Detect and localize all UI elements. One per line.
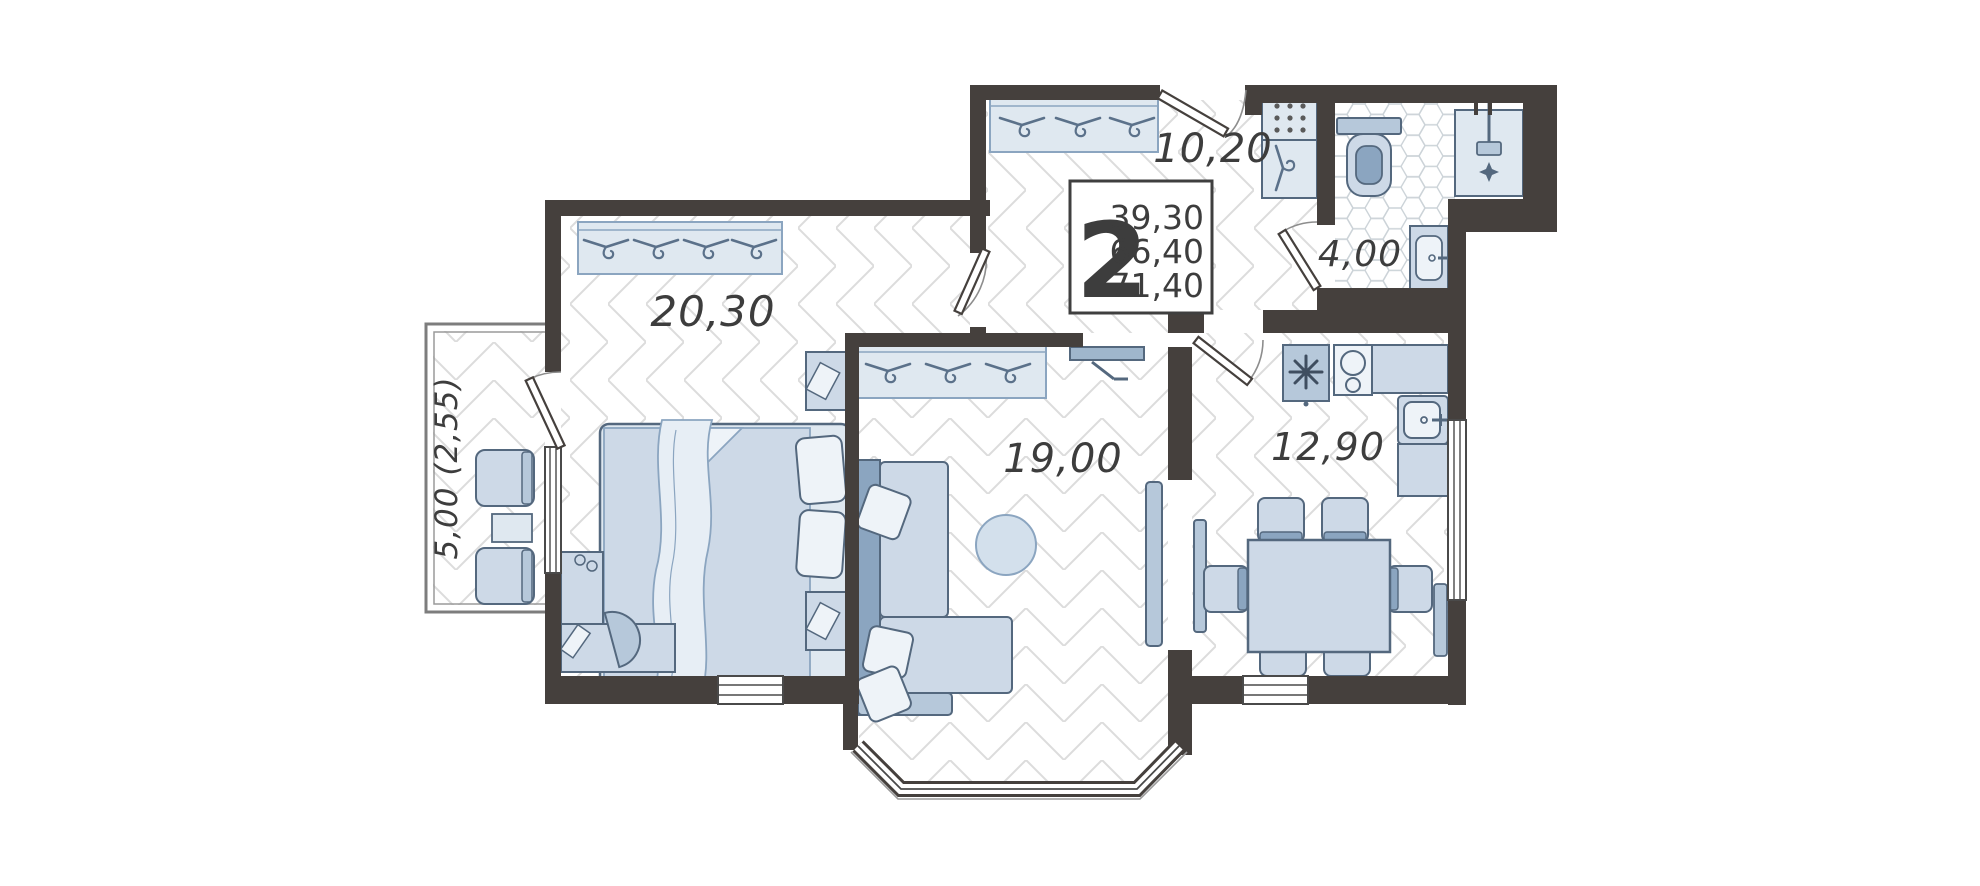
wall-segment bbox=[845, 333, 859, 700]
bathroom-area-label: 4,00 bbox=[1318, 234, 1402, 275]
dining-chair bbox=[1388, 566, 1432, 612]
nightstand-bottom bbox=[806, 592, 846, 650]
wall-segment bbox=[970, 85, 1160, 100]
sliding-door-leaf-living bbox=[1146, 482, 1162, 646]
hallway-area-label: 10,20 bbox=[1153, 126, 1273, 172]
living-room-area-label: 19,00 bbox=[1003, 436, 1123, 482]
bed-pillow bbox=[795, 435, 847, 505]
floor-plan-drawing: 10,20 20,30 19,00 12,90 4,00 5,00 (2,55)… bbox=[0, 0, 1980, 886]
balcony-side-table bbox=[492, 514, 532, 542]
bed-pillow bbox=[796, 510, 846, 579]
wall-segment bbox=[1247, 85, 1557, 103]
wall-segment bbox=[1263, 310, 1466, 333]
info-total-area: 71,40 bbox=[1110, 266, 1204, 305]
info-box: 2 39,30 66,40 71,40 bbox=[1070, 181, 1212, 322]
balcony-chair-bottom bbox=[476, 548, 534, 604]
wall-segment bbox=[970, 216, 986, 253]
wall-segment bbox=[545, 200, 561, 372]
balcony-chair-top bbox=[476, 450, 534, 506]
wall-segment bbox=[545, 200, 990, 216]
kitchen-sink bbox=[1398, 396, 1450, 444]
wall-segment bbox=[970, 85, 986, 216]
kitchen-area-label: 12,90 bbox=[1271, 425, 1385, 469]
wall-segment bbox=[783, 676, 859, 704]
wall-segment bbox=[1168, 676, 1243, 704]
wall-tick bbox=[1488, 103, 1492, 115]
radiator bbox=[1434, 584, 1447, 656]
burner-icon bbox=[1290, 356, 1322, 388]
toilet bbox=[1337, 118, 1401, 196]
bedroom-area-label: 20,30 bbox=[650, 287, 775, 336]
wall-segment bbox=[1448, 199, 1528, 232]
shower bbox=[1455, 103, 1523, 196]
balcony-area-label: 5,00 (2,55) bbox=[429, 376, 465, 559]
wall-segment bbox=[1317, 103, 1335, 225]
shower-head bbox=[1477, 142, 1501, 155]
dining-chair bbox=[1322, 498, 1368, 542]
kitchen-bottom-window bbox=[1243, 676, 1308, 704]
cooktop-counter bbox=[1283, 345, 1329, 407]
wall-segment bbox=[1317, 288, 1466, 310]
dining-chair bbox=[1204, 566, 1248, 612]
nightstand-top bbox=[806, 352, 846, 410]
bedroom-wardrobe bbox=[578, 222, 782, 274]
hallway-wardrobe bbox=[990, 98, 1158, 152]
kitchen-counter bbox=[1372, 345, 1448, 393]
kitchen-base-cabinet bbox=[1398, 444, 1448, 496]
wall-segment bbox=[845, 333, 1083, 347]
wall-segment bbox=[1168, 347, 1192, 480]
floor-plan-page: 10,20 20,30 19,00 12,90 4,00 5,00 (2,55)… bbox=[0, 0, 1980, 886]
living-wardrobe bbox=[858, 344, 1046, 398]
dining-chair bbox=[1258, 498, 1304, 542]
wall-segment bbox=[545, 676, 718, 704]
dining-table bbox=[1248, 540, 1390, 652]
oven bbox=[1334, 345, 1372, 395]
kitchen-side-window bbox=[1448, 420, 1466, 600]
balcony-door-window bbox=[545, 447, 561, 573]
wall-segment bbox=[1308, 676, 1466, 704]
coffee-table bbox=[976, 515, 1036, 575]
bedroom-window bbox=[718, 676, 783, 704]
wall-tick bbox=[1474, 103, 1478, 115]
bathroom-sink bbox=[1410, 226, 1450, 290]
wall-segment bbox=[1523, 85, 1557, 232]
wall-segment bbox=[843, 700, 858, 750]
